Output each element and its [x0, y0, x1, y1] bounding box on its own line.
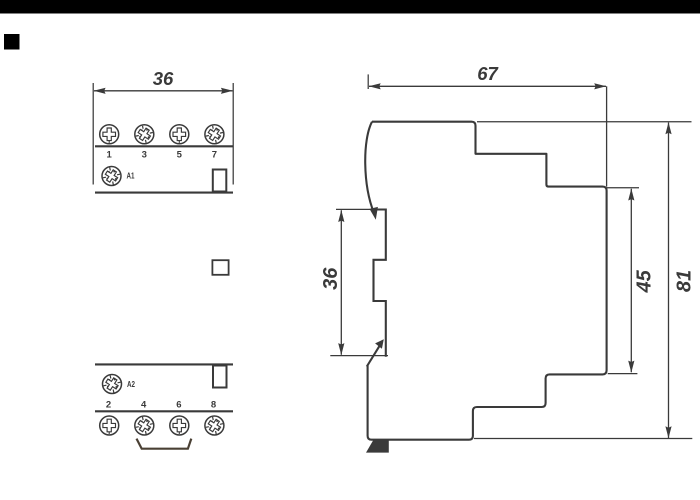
svg-text:5: 5 — [177, 150, 183, 161]
svg-text:3: 3 — [142, 150, 147, 161]
svg-text:67: 67 — [477, 63, 499, 84]
svg-text:36: 36 — [320, 267, 342, 290]
svg-text:81: 81 — [674, 270, 696, 292]
svg-text:6: 6 — [176, 400, 181, 411]
svg-text:8: 8 — [211, 400, 216, 411]
svg-text:7: 7 — [212, 150, 217, 161]
svg-text:4: 4 — [141, 400, 147, 411]
svg-text:2: 2 — [106, 400, 111, 411]
svg-text:A2: A2 — [127, 380, 135, 389]
svg-text:36: 36 — [153, 68, 174, 89]
svg-text:1: 1 — [107, 150, 113, 161]
svg-text:45: 45 — [633, 269, 655, 293]
svg-text:A1: A1 — [127, 171, 135, 180]
